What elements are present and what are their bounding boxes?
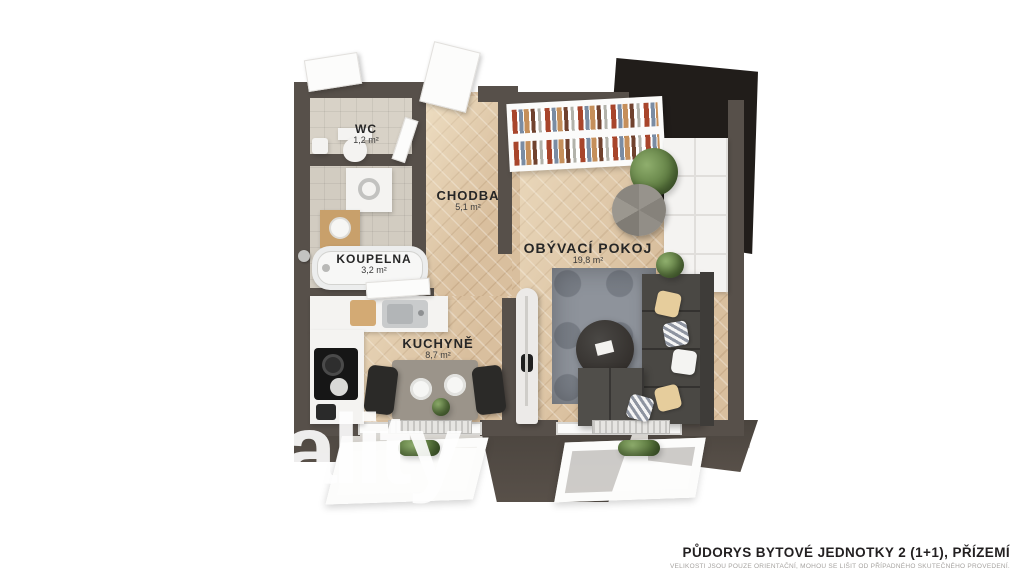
room-name: OBÝVACÍ POKOJ [524, 240, 653, 256]
well-plant-right [618, 440, 660, 456]
sofa-pillow [670, 348, 697, 375]
room-area: 19,8 m² [524, 255, 653, 265]
room-name: WC [353, 122, 379, 136]
room-area: 5,1 m² [436, 202, 499, 212]
coat-rack [516, 288, 538, 424]
living-plant-small [656, 252, 684, 278]
room-name: KOUPELNA [336, 252, 411, 266]
washing-machine [346, 168, 392, 212]
room-area: 1,2 m² [353, 135, 379, 145]
room-area: 8,7 m² [402, 350, 473, 360]
watermark-text: ality [282, 400, 458, 498]
wall-right [728, 100, 744, 428]
cutting-board [350, 300, 376, 326]
room-label-wc: WC 1,2 m² [353, 122, 379, 145]
cooktop [314, 348, 358, 400]
kitchen-faucet-icon [418, 310, 424, 316]
plan-disclaimer: VELIKOSTI JSOU POUZE ORIENTAČNÍ, MOHOU S… [670, 563, 1010, 570]
washing-machine-drum-icon [358, 178, 380, 200]
shower-fixture-icon [298, 250, 310, 262]
sofa-pillow [654, 290, 682, 318]
room-area: 3,2 m² [336, 265, 411, 275]
floorplan-render: WC 1,2 m² KOUPELNA 3,2 m² CHODBA 5,1 m² … [0, 0, 1024, 576]
room-label-chodba: CHODBA 5,1 m² [436, 188, 499, 212]
plan-title: PŮDORYS BYTOVÉ JEDNOTKY 2 (1+1), PŘÍZEMÍ [670, 545, 1010, 560]
room-label-koupelna: KOUPELNA 3,2 m² [336, 252, 411, 275]
sofa-pillow [662, 320, 690, 348]
book-on-table [595, 340, 614, 356]
hanger-pole-icon [525, 296, 528, 406]
room-name: KUCHYNĚ [402, 336, 473, 351]
vanity-sink [329, 217, 351, 239]
sofa-backrest [700, 272, 714, 426]
dining-chair-right [471, 364, 507, 415]
footer-title-block: PŮDORYS BYTOVÉ JEDNOTKY 2 (1+1), PŘÍZEMÍ… [670, 545, 1010, 570]
kitchen-sink [382, 300, 428, 328]
room-label-obyvaci-pokoj: OBÝVACÍ POKOJ 19,8 m² [524, 240, 653, 265]
wall-wc-bath [308, 154, 426, 166]
plate-icon [444, 374, 466, 396]
room-label-kuchyne: KUCHYNĚ 8,7 m² [402, 336, 473, 360]
kitchen-sink-basin [387, 304, 413, 324]
room-name: CHODBA [436, 188, 499, 203]
bathroom-vanity [320, 210, 360, 248]
pot-icon [322, 354, 344, 376]
radiator-living [592, 420, 670, 434]
pouf [612, 184, 666, 236]
corner-washbasin [312, 138, 328, 154]
book-row [512, 102, 659, 134]
bathtub-faucet-icon [322, 264, 330, 272]
